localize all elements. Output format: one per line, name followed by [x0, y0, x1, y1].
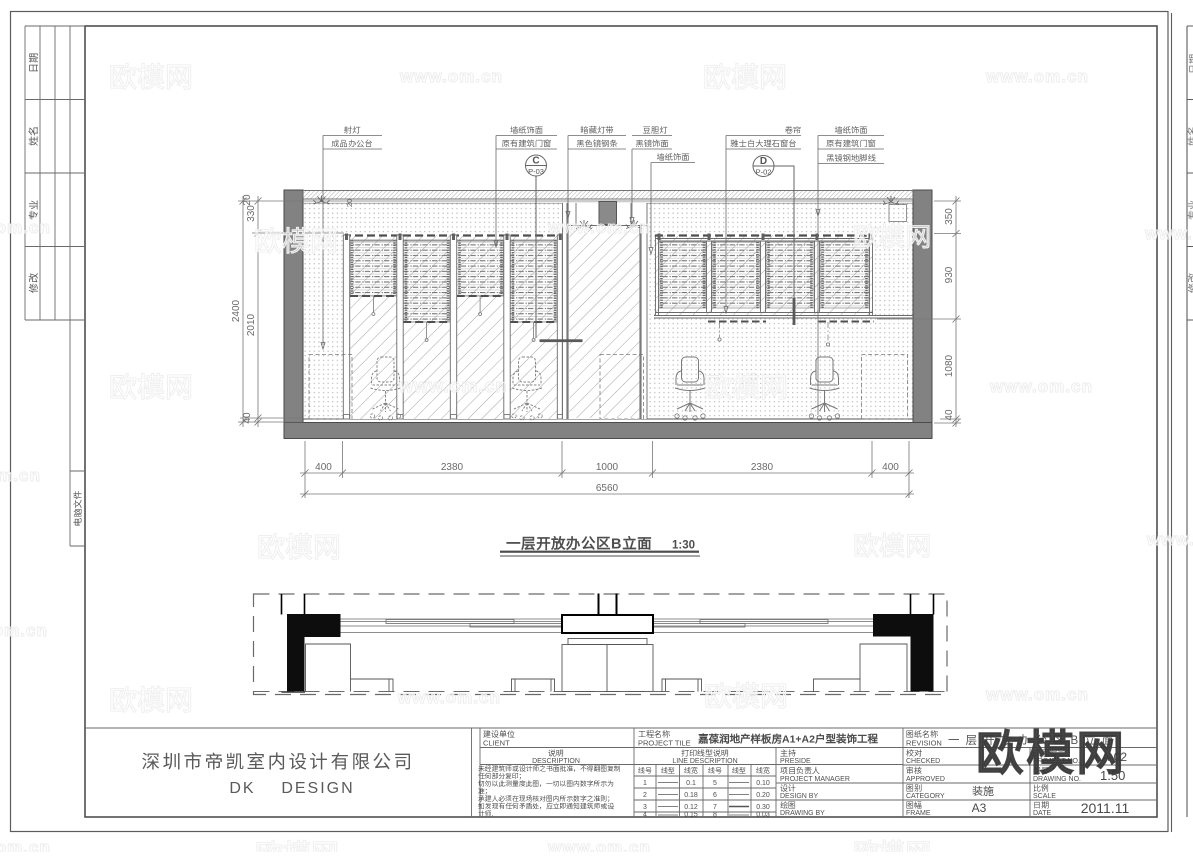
svg-text:装施: 装施	[972, 783, 994, 799]
svg-text:REVISION: REVISION	[906, 738, 942, 749]
svg-text:线号: 线号	[708, 766, 722, 776]
svg-text:姓名: 姓名	[25, 126, 40, 146]
svg-text:www.om.cn: www.om.cn	[0, 616, 48, 641]
svg-text:DATE: DATE	[1033, 808, 1051, 818]
svg-text:射灯: 射灯	[344, 124, 361, 136]
svg-text:2: 2	[643, 790, 647, 800]
svg-text:线型: 线型	[661, 766, 675, 776]
svg-text:CHECKED: CHECKED	[906, 756, 940, 766]
svg-text:P-02: P-02	[756, 167, 772, 178]
svg-text:www.om.cn: www.om.cn	[547, 833, 651, 852]
svg-text:欧模网: 欧模网	[853, 526, 931, 563]
svg-text:欧模网: 欧模网	[704, 366, 788, 406]
svg-text:电脑文件: 电脑文件	[71, 490, 84, 526]
svg-text:DRAWING BY: DRAWING BY	[780, 808, 825, 818]
svg-text:计师.: 计师.	[478, 808, 494, 818]
svg-text:www.om.cn: www.om.cn	[398, 372, 507, 398]
svg-text:20: 20	[344, 199, 355, 207]
svg-text:PROJECT TILE: PROJECT TILE	[638, 738, 691, 749]
svg-text:2400: 2400	[227, 299, 242, 322]
svg-text:欧模网: 欧模网	[704, 675, 788, 715]
svg-text:欧模网: 欧模网	[703, 56, 787, 96]
svg-text:日期: 日期	[25, 53, 40, 73]
svg-text:一层开放办公区B立面: 一层开放办公区B立面	[506, 533, 652, 554]
svg-text:线型: 线型	[732, 766, 746, 776]
svg-text:修改: 修改	[1184, 272, 1193, 294]
svg-text:深圳市帝凯室内设计有限公司: 深圳市帝凯室内设计有限公司	[141, 748, 414, 774]
svg-text:线宽: 线宽	[756, 766, 770, 776]
svg-text:DK DESIGN: DK DESIGN	[229, 774, 354, 798]
svg-text:2380: 2380	[441, 458, 464, 473]
svg-text:黑镜饰面: 黑镜饰面	[635, 138, 668, 150]
svg-text:www.om.cn: www.om.cn	[985, 62, 1089, 87]
svg-text:www.om.cn: www.om.cn	[397, 683, 501, 708]
svg-text:www.om.cn: www.om.cn	[1146, 525, 1193, 550]
svg-text:6560: 6560	[596, 479, 619, 494]
svg-text:www.om.cn: www.om.cn	[399, 62, 503, 87]
svg-text:5: 5	[713, 778, 717, 788]
svg-text:0.10: 0.10	[756, 778, 770, 788]
svg-text:欧模网: 欧模网	[853, 217, 931, 254]
svg-text:切勿以此测量度此图，一切以图内数字所示为: 切勿以此测量度此图，一切以图内数字所示为	[478, 778, 614, 788]
svg-text:1000: 1000	[596, 458, 619, 473]
svg-text:黑色镜钢条: 黑色镜钢条	[576, 138, 618, 150]
svg-text:20: 20	[238, 194, 253, 206]
svg-text:400: 400	[882, 458, 899, 473]
svg-text:1080: 1080	[940, 354, 955, 377]
svg-text:原有建筑门窗: 原有建筑门窗	[826, 138, 876, 150]
svg-text:www.om.cn: www.om.cn	[0, 833, 51, 852]
svg-text:0.15: 0.15	[684, 810, 698, 820]
svg-text:欧模网: 欧模网	[257, 526, 341, 566]
svg-text:FRAME: FRAME	[906, 808, 931, 818]
svg-text:成品办公台: 成品办公台	[331, 138, 373, 150]
svg-text:专业: 专业	[1184, 200, 1193, 220]
svg-text:雅士白大理石窗台: 雅士白大理石窗台	[730, 138, 796, 150]
svg-text:欧模网: 欧模网	[109, 366, 193, 406]
svg-text:欧模网: 欧模网	[255, 833, 339, 852]
svg-text:墙纸饰面: 墙纸饰面	[834, 124, 867, 136]
svg-text:350: 350	[940, 208, 955, 225]
svg-text:www.om.cn: www.om.cn	[547, 213, 651, 238]
svg-text:墙纸饰面: 墙纸饰面	[656, 151, 689, 163]
svg-text:墙纸饰面: 墙纸饰面	[510, 124, 543, 136]
svg-text:暗藏灯带: 暗藏灯带	[580, 124, 613, 136]
svg-text:www.om.cn: www.om.cn	[0, 461, 41, 486]
svg-text:欧模网: 欧模网	[109, 679, 193, 719]
svg-text:1:30: 1:30	[672, 537, 695, 553]
svg-text:如发现有任何矛盾处，应立即通知建筑师或设: 如发现有任何矛盾处，应立即通知建筑师或设	[478, 801, 614, 811]
svg-text:D: D	[760, 152, 767, 167]
svg-text:www.om.cn: www.om.cn	[0, 213, 51, 238]
svg-text:欧模网: 欧模网	[254, 220, 338, 260]
svg-text:线宽: 线宽	[684, 766, 698, 776]
svg-text:嘉葆润地产样板房A1+A2户型装饰工程: 嘉葆润地产样板房A1+A2户型装饰工程	[698, 732, 878, 747]
svg-text:日期: 日期	[1185, 54, 1193, 74]
svg-text:LINE DESCRIPTION: LINE DESCRIPTION	[672, 756, 737, 766]
svg-text:930: 930	[940, 266, 955, 283]
svg-text:欧模网: 欧模网	[109, 56, 193, 96]
svg-text:原有建筑门窗: 原有建筑门窗	[502, 138, 552, 150]
svg-text:卷帘: 卷帘	[785, 124, 802, 136]
svg-text:姓名: 姓名	[1184, 126, 1193, 146]
svg-text:400: 400	[315, 458, 332, 473]
svg-text:豆胆灯: 豆胆灯	[643, 124, 669, 136]
svg-text:8: 8	[713, 810, 717, 820]
svg-text:0.03: 0.03	[756, 810, 770, 820]
svg-text:40: 40	[940, 409, 955, 421]
svg-text:线号: 线号	[638, 766, 652, 776]
svg-text:www.om.cn: www.om.cn	[985, 680, 1089, 705]
svg-text:www.om.cn: www.om.cn	[989, 372, 1093, 397]
svg-text:6: 6	[713, 790, 717, 800]
svg-text:PRESIDE: PRESIDE	[780, 756, 811, 766]
svg-text:4: 4	[643, 810, 647, 820]
svg-text:P-03: P-03	[528, 166, 544, 177]
svg-text:欧模网: 欧模网	[976, 714, 1126, 784]
svg-text:欧模网: 欧模网	[853, 833, 931, 852]
svg-text:0.1: 0.1	[686, 778, 696, 788]
svg-text:2380: 2380	[751, 458, 774, 473]
svg-text:www.om.cn: www.om.cn	[1144, 219, 1193, 244]
svg-text:CLIENT: CLIENT	[483, 738, 510, 749]
svg-text:40: 40	[238, 412, 253, 424]
svg-text:修改: 修改	[25, 272, 40, 294]
svg-text:C: C	[532, 152, 539, 167]
svg-text:2010: 2010	[242, 313, 257, 336]
svg-text:1: 1	[643, 778, 647, 788]
svg-text:0.18: 0.18	[684, 790, 698, 800]
svg-text:2011.11: 2011.11	[1081, 798, 1130, 818]
svg-text:黑镜钢地脚线: 黑镜钢地脚线	[826, 152, 876, 164]
svg-text:0.20: 0.20	[756, 790, 770, 800]
svg-text:A3: A3	[972, 799, 987, 816]
